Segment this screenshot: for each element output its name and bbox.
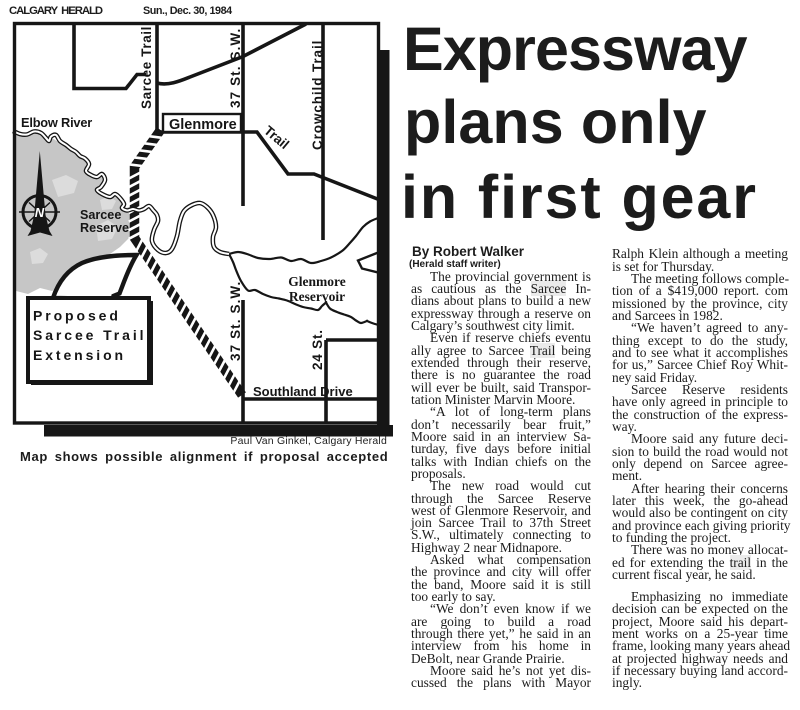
svg-text:Elbow River: Elbow River bbox=[21, 115, 92, 130]
svg-text:Sarcee: Sarcee bbox=[80, 208, 121, 222]
svg-text:Reserve: Reserve bbox=[80, 221, 129, 235]
svg-text:Proposed: Proposed bbox=[33, 308, 121, 324]
svg-text:37 St. S.W.: 37 St. S.W. bbox=[228, 281, 243, 361]
svg-text:Sarcee Trail: Sarcee Trail bbox=[33, 327, 146, 343]
svg-text:Extension: Extension bbox=[33, 347, 126, 363]
svg-text:37 St. S.W.: 37 St. S.W. bbox=[228, 28, 243, 108]
svg-text:Reservoir: Reservoir bbox=[289, 289, 345, 304]
svg-text:Glenmore: Glenmore bbox=[288, 274, 346, 289]
svg-text:Glenmore: Glenmore bbox=[169, 117, 237, 133]
svg-text:Southland Drive: Southland Drive bbox=[253, 384, 353, 399]
svg-text:24 St.: 24 St. bbox=[310, 329, 325, 370]
svg-text:N: N bbox=[35, 205, 45, 220]
svg-text:Trail: Trail bbox=[261, 123, 292, 152]
svg-text:Crowchild Trail: Crowchild Trail bbox=[310, 40, 325, 150]
svg-text:Sarcee Trail: Sarcee Trail bbox=[139, 26, 154, 109]
